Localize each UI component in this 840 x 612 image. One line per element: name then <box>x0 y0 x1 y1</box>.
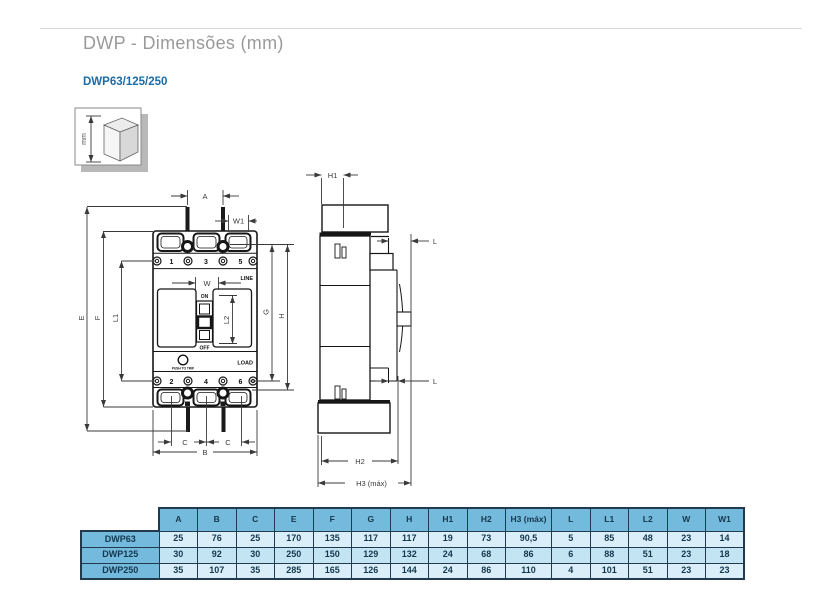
table-header-row: A B C E F G H H1 H2 H3 (máx) L L1 L2 W W… <box>81 508 744 531</box>
page-title: DWP - Dimensões (mm) <box>83 33 284 54</box>
column-header: H <box>390 508 429 531</box>
load-side-label: LOAD <box>237 361 253 367</box>
dimensions-table: A B C E F G H H1 H2 H3 (máx) L L1 L2 W W… <box>80 507 745 580</box>
table-cell: 144 <box>390 563 429 579</box>
table-cell: 101 <box>590 563 629 579</box>
table-cell: 170 <box>275 531 314 547</box>
catalog-page: DWP - Dimensões (mm) DWP63/125/250 mm <box>0 0 840 612</box>
column-header: H1 <box>429 508 468 531</box>
dim-label-w1: W1 <box>233 217 244 226</box>
dimensions-figure: mm <box>55 100 460 500</box>
table-cell: 23 <box>667 531 706 547</box>
table-cell: 132 <box>390 547 429 563</box>
dim-label-a: A <box>202 192 207 201</box>
table-cell: 25 <box>159 531 198 547</box>
table-cell: 23 <box>706 563 745 579</box>
on-label: ON <box>201 294 209 300</box>
column-header: B <box>198 508 237 531</box>
pole-number: 1 <box>170 259 174 266</box>
dim-label-l-bottom: L <box>433 377 437 386</box>
column-header: F <box>313 508 352 531</box>
table-cell: 126 <box>352 563 391 579</box>
off-label: OFF <box>200 346 210 352</box>
table-cell: 88 <box>590 547 629 563</box>
table-cell: 73 <box>467 531 506 547</box>
column-header: H2 <box>467 508 506 531</box>
table-cell: 117 <box>352 531 391 547</box>
table-cell: 24 <box>429 563 468 579</box>
row-label: DWP63 <box>81 531 159 547</box>
table-cell: 19 <box>429 531 468 547</box>
dim-label-f: F <box>93 315 102 320</box>
mm-label: mm <box>81 133 88 145</box>
table-cell: 285 <box>275 563 314 579</box>
table-cell: 68 <box>467 547 506 563</box>
table-row: DWP63 25 76 25 170 135 117 117 19 73 90,… <box>81 531 744 547</box>
table-cell: 18 <box>706 547 745 563</box>
table-cell: 30 <box>159 547 198 563</box>
pole-number: 6 <box>239 379 243 386</box>
column-header: W <box>667 508 706 531</box>
table-cell: 51 <box>629 547 668 563</box>
table-cell: 5 <box>552 531 591 547</box>
table-cell: 24 <box>429 547 468 563</box>
table-cell: 23 <box>667 547 706 563</box>
mm-unit-icon: mm <box>75 108 148 172</box>
column-header: C <box>236 508 275 531</box>
table-cell: 51 <box>629 563 668 579</box>
dim-label-h3: H3 (máx) <box>356 479 387 488</box>
pole-number: 2 <box>170 379 174 386</box>
table-cell: 92 <box>198 547 237 563</box>
dim-label-l2: L2 <box>222 316 231 324</box>
dim-label-h1: H1 <box>328 171 338 180</box>
table-cell: 90,5 <box>506 531 552 547</box>
column-header: L2 <box>629 508 668 531</box>
dim-label-w: W <box>203 279 211 288</box>
pole-number: 5 <box>239 259 243 266</box>
table-cell: 117 <box>390 531 429 547</box>
column-header: A <box>159 508 198 531</box>
table-cell: 35 <box>159 563 198 579</box>
column-header: W1 <box>706 508 745 531</box>
dim-label-c-right: C <box>225 438 231 447</box>
dim-label-h2: H2 <box>355 457 365 466</box>
dim-label-l1: L1 <box>111 314 120 322</box>
dim-label-h: H <box>277 313 286 318</box>
table-row: DWP250 35 107 35 285 165 126 144 24 86 1… <box>81 563 744 579</box>
technical-drawing: mm <box>55 100 460 500</box>
table-cell: 4 <box>552 563 591 579</box>
side-view-drawing <box>318 205 411 433</box>
table-row: DWP125 30 92 30 250 150 129 132 24 68 86… <box>81 547 744 563</box>
table-cell: 76 <box>198 531 237 547</box>
column-header: E <box>275 508 314 531</box>
pole-number: 3 <box>204 259 208 266</box>
table-cell: 30 <box>236 547 275 563</box>
table-cell: 23 <box>667 563 706 579</box>
table-cell: 14 <box>706 531 745 547</box>
table-cell: 107 <box>198 563 237 579</box>
table-cell: 85 <box>590 531 629 547</box>
table-cell: 25 <box>236 531 275 547</box>
pole-number: 4 <box>204 379 208 386</box>
line-side-label: LINE <box>240 276 253 282</box>
row-label: DWP125 <box>81 547 159 563</box>
table-cell: 250 <box>275 547 314 563</box>
dim-label-b: B <box>202 448 207 457</box>
push-to-trip-label: PUSH TO TRIP <box>172 367 195 371</box>
corner-cell <box>81 508 159 531</box>
column-header: G <box>352 508 391 531</box>
table-cell: 110 <box>506 563 552 579</box>
table-cell: 6 <box>552 547 591 563</box>
table-cell: 86 <box>467 563 506 579</box>
column-header: H3 (máx) <box>506 508 552 531</box>
column-header: L1 <box>590 508 629 531</box>
table-cell: 35 <box>236 563 275 579</box>
row-label: DWP250 <box>81 563 159 579</box>
table-cell: 48 <box>629 531 668 547</box>
dim-label-e: E <box>77 315 86 320</box>
model-line-heading: DWP63/125/250 <box>83 76 167 88</box>
table-cell: 165 <box>313 563 352 579</box>
table-cell: 135 <box>313 531 352 547</box>
table-cell: 129 <box>352 547 391 563</box>
table-cell: 86 <box>506 547 552 563</box>
dim-label-l-top: L <box>433 237 437 246</box>
column-header: L <box>552 508 591 531</box>
dimensions-table-wrapper: A B C E F G H H1 H2 H3 (máx) L L1 L2 W W… <box>80 507 743 580</box>
header-divider <box>40 28 802 29</box>
dim-label-c-left: C <box>182 438 188 447</box>
dim-label-g: G <box>262 309 271 315</box>
table-cell: 150 <box>313 547 352 563</box>
